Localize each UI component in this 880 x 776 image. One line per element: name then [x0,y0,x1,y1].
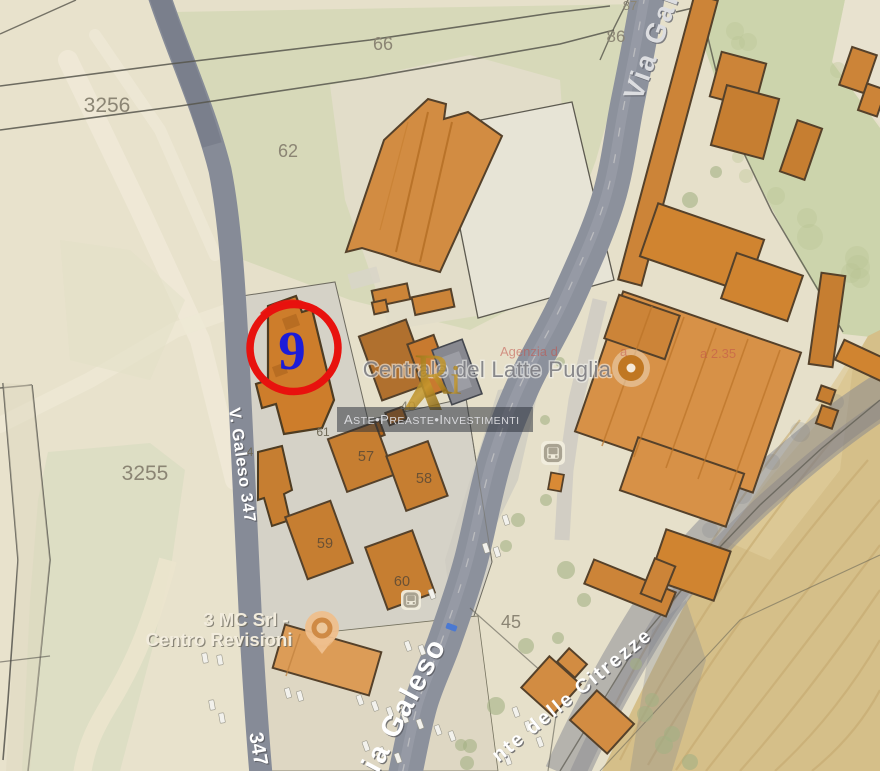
svg-text:Centro Revisioni: Centro Revisioni [146,629,293,650]
svg-text:66: 66 [373,34,393,54]
svg-text:3255: 3255 [122,462,169,485]
svg-text:61: 61 [316,425,330,439]
svg-text:58: 58 [416,471,432,487]
svg-text:i: i [450,358,462,404]
svg-text:59: 59 [317,536,333,552]
svg-text:a: a [620,344,628,359]
svg-text:62: 62 [278,141,298,161]
svg-text:57: 57 [358,449,374,465]
svg-text:45: 45 [501,612,521,632]
svg-text:60: 60 [394,574,410,590]
svg-text:3256: 3256 [84,94,131,117]
svg-text:ASTE•PREASTE•INVESTIMENTI: ASTE•PREASTE•INVESTIMENTI [344,412,520,427]
svg-text:9: 9 [278,320,306,381]
svg-text:3 MC Srl -: 3 MC Srl - [203,609,288,630]
svg-text:86: 86 [607,27,626,46]
svg-text:87: 87 [623,0,637,13]
svg-text:a 2.35: a 2.35 [700,346,736,361]
svg-text:Centrale del Latte Puglia: Centrale del Latte Puglia [363,357,612,382]
